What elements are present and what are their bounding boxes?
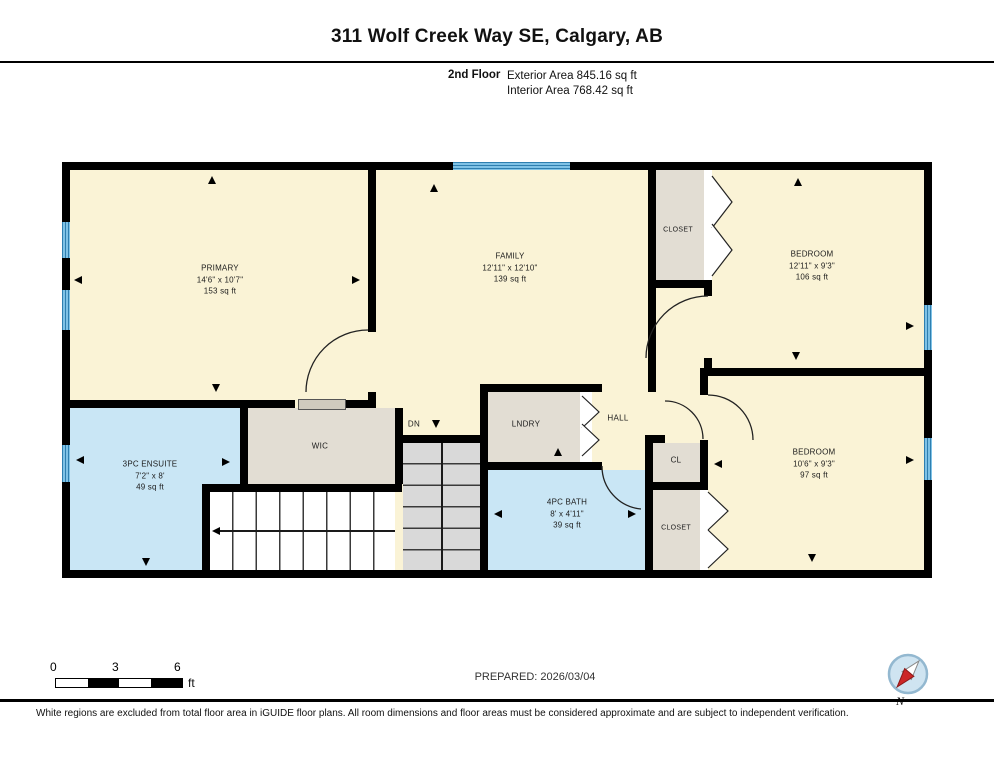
room-label-bedroom-top: BEDROOM 12'11" x 9'3" 106 sq ft [789,249,835,284]
bifold-door-icon [708,492,728,530]
floor-label: 2nd Floor [448,69,500,81]
dimension-arrow-icon [212,384,220,392]
room-label-family: FAMILY 12'11" x 12'10" 139 sq ft [482,251,537,286]
dimension-arrow-icon [142,558,150,566]
scale-tick-6: 6 [174,660,181,674]
label-laundry: LNDRY [512,420,540,429]
room-label-bedroom-bottom: BEDROOM 10'6" x 9'3" 97 sq ft [793,447,836,482]
room-label-primary: PRIMARY 14'6" x 10'7" 153 sq ft [197,263,243,298]
dimension-arrow-icon [208,176,216,184]
dimension-arrow-icon [906,456,914,464]
bifold-door-icon [582,424,599,456]
bifold-door-icon [582,396,599,428]
dimension-arrow-icon [794,178,802,186]
dimension-arrow-icon [222,458,230,466]
exterior-area: Exterior Area 845.16 sq ft [507,69,637,84]
bifold-door-icon [712,176,732,228]
dimension-arrow-icon [906,322,914,330]
door-swing [708,395,753,440]
header-divider [0,61,994,63]
scale-segment [88,679,120,687]
page-title: 311 Wolf Creek Way SE, Calgary, AB [0,26,994,48]
room-label-bath: 4PC BATH 8' x 4'11" 39 sq ft [547,497,587,532]
stairs-down-arrow-icon [432,420,440,428]
dimension-arrow-icon [76,456,84,464]
dimension-arrow-icon [494,510,502,518]
dimension-arrow-icon [554,448,562,456]
dimension-arrow-icon [430,184,438,192]
dimension-arrow-icon [74,276,82,284]
door-swing-arcs [306,296,753,509]
bifold-door-icon [712,224,732,276]
scale-segment [119,679,151,687]
door-swing [602,466,641,509]
scale-bar [55,678,183,688]
disclaimer-text: White regions are excluded from total fl… [36,708,966,719]
door-swing [306,330,368,392]
prepared-date: PREPARED: 2026/03/04 [430,671,640,683]
bifold-door-icon [708,530,728,568]
scale-segment [151,679,183,687]
footer-divider [0,699,994,702]
label-closet-bottom: CLOSET [661,525,691,532]
compass-icon [884,652,932,698]
label-wic: WIC [312,442,328,451]
door-swing [665,401,703,439]
label-dn: DN [408,420,420,429]
scale-segment [56,679,88,687]
dimension-arrow-icon [628,510,636,518]
label-closet-top: CLOSET [663,227,693,234]
bifold-doors [582,176,732,568]
dimension-arrow-icon [714,460,722,468]
label-cl: CL [671,456,682,465]
scale-unit: ft [188,676,195,690]
dimension-arrow-icon [792,352,800,360]
label-hall: HALL [607,414,628,423]
area-summary: Exterior Area 845.16 sq ft Interior Area… [507,69,637,99]
scale-tick-3: 3 [112,660,119,674]
dimension-arrow-icon [808,554,816,562]
interior-area: Interior Area 768.42 sq ft [507,84,637,99]
room-label-ensuite: 3PC ENSUITE 7'2" x 8' 49 sq ft [123,459,178,494]
floor-plan: PRIMARY 14'6" x 10'7" 153 sq ft FAMILY 1… [62,162,932,578]
dimension-arrow-icon [352,276,360,284]
door-swing [646,296,708,358]
scale-tick-0: 0 [50,660,57,674]
